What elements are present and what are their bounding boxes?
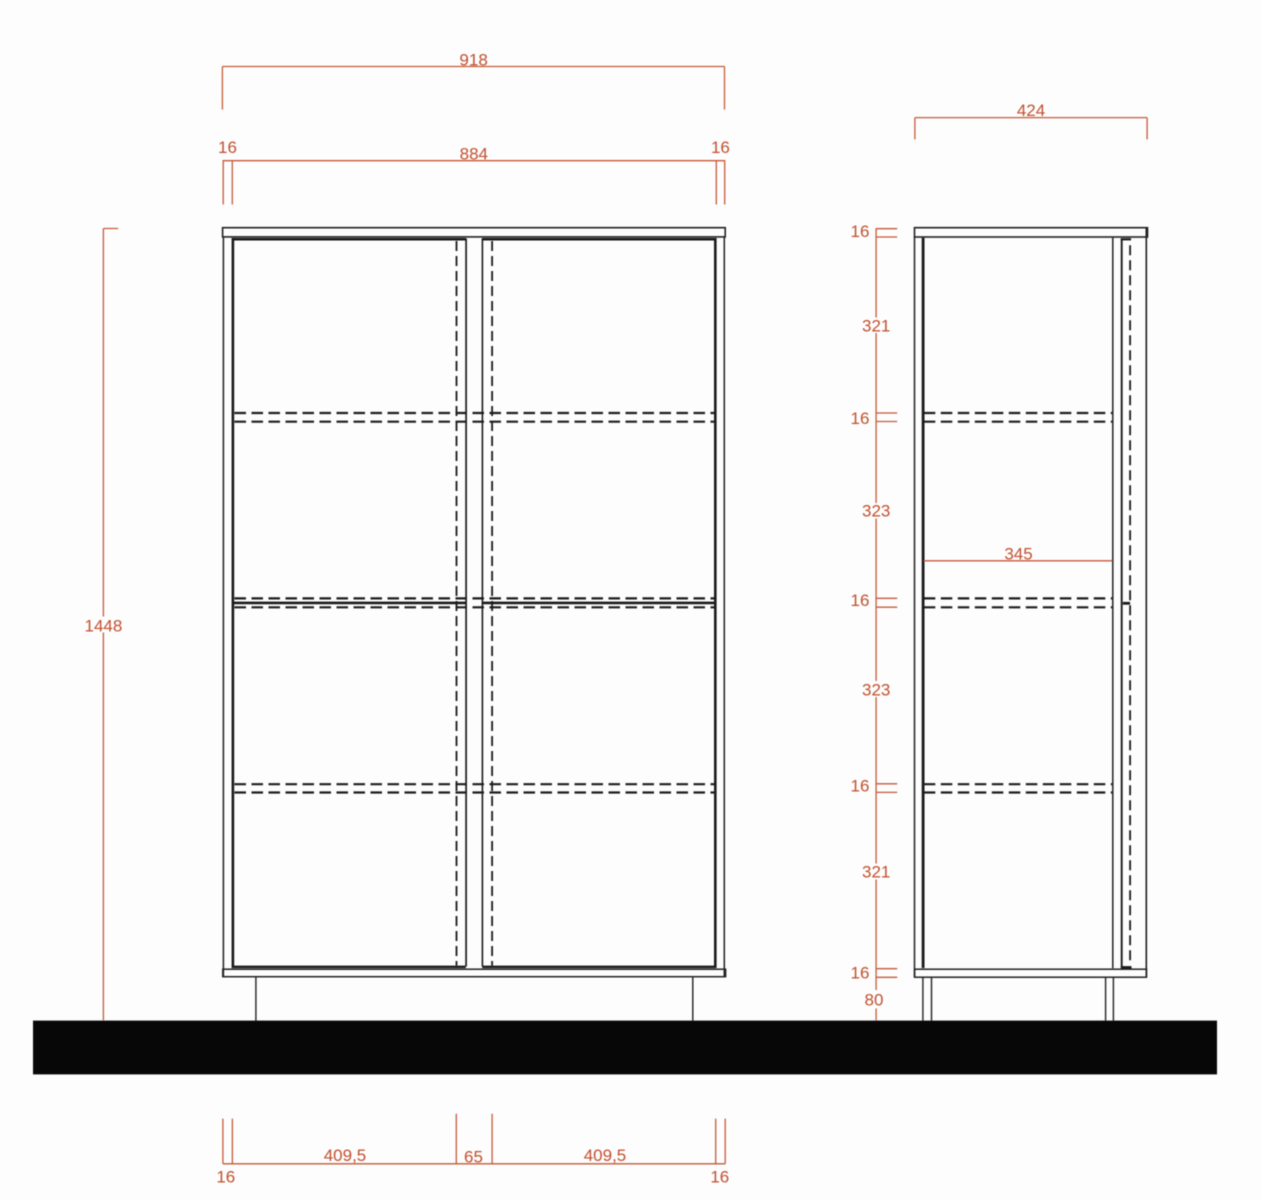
svg-text:16: 16	[218, 138, 237, 157]
svg-text:321: 321	[862, 317, 890, 336]
svg-text:16: 16	[216, 1168, 235, 1187]
svg-text:80: 80	[865, 991, 884, 1010]
svg-text:424: 424	[1017, 101, 1045, 120]
svg-text:1448: 1448	[84, 616, 122, 635]
svg-text:16: 16	[851, 964, 870, 983]
svg-text:409,5: 409,5	[584, 1146, 627, 1165]
svg-text:409,5: 409,5	[324, 1146, 367, 1165]
svg-text:323: 323	[862, 502, 890, 521]
svg-text:321: 321	[862, 862, 890, 881]
svg-text:323: 323	[862, 680, 890, 699]
svg-text:16: 16	[851, 222, 870, 241]
svg-text:345: 345	[1004, 544, 1032, 563]
svg-text:16: 16	[711, 138, 730, 157]
svg-text:16: 16	[851, 777, 870, 796]
svg-text:884: 884	[460, 145, 488, 164]
svg-text:918: 918	[459, 51, 487, 70]
svg-text:16: 16	[710, 1168, 729, 1187]
svg-text:16: 16	[851, 591, 870, 610]
svg-text:16: 16	[851, 409, 870, 428]
svg-text:65: 65	[464, 1148, 483, 1167]
